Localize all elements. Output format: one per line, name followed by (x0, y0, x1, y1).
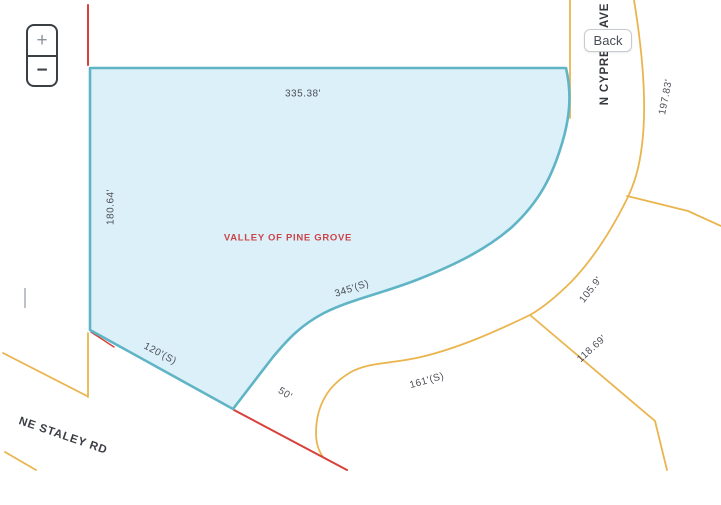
parcel-polygon[interactable] (90, 68, 569, 409)
road-staley-diagonal (3, 353, 87, 396)
zoom-out-button[interactable]: − (28, 57, 56, 86)
red-line-south (234, 410, 347, 470)
road-southeast-branch (530, 315, 667, 470)
plat-map-viewer: 335.38' 180.64' 345'(S) 120'(S) 50' 161'… (0, 0, 721, 505)
road-south-curve (316, 315, 530, 457)
road-east-branch (627, 196, 721, 226)
zoom-control: + − (26, 24, 58, 87)
road-staley-lower-segment (5, 452, 36, 470)
back-button[interactable]: Back (584, 29, 632, 52)
map-canvas (0, 0, 721, 505)
zoom-in-button[interactable]: + (28, 26, 56, 57)
